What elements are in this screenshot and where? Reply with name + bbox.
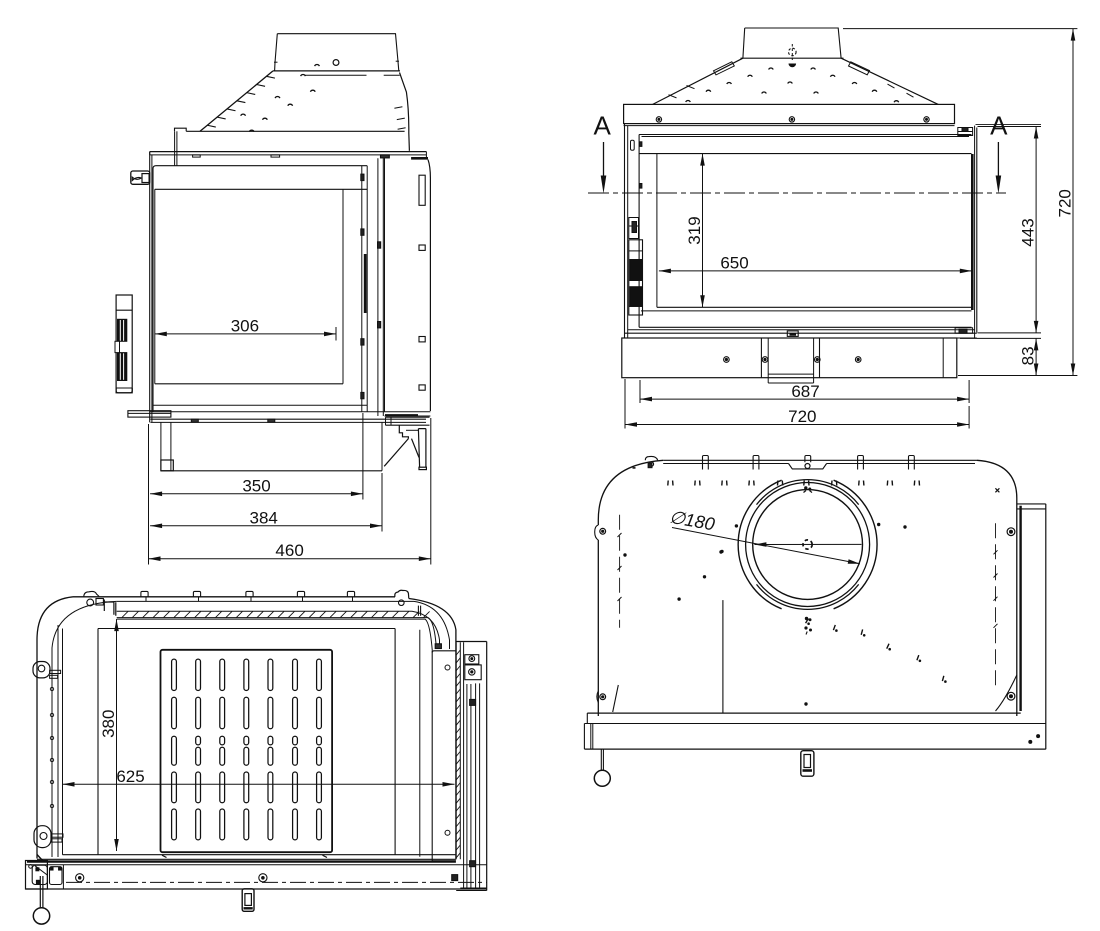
svg-text:687: 687	[791, 382, 819, 401]
svg-text:319: 319	[685, 216, 704, 244]
svg-text:460: 460	[275, 541, 303, 560]
svg-text:350: 350	[242, 476, 270, 495]
svg-text:650: 650	[720, 253, 748, 272]
svg-text:306: 306	[231, 316, 259, 335]
svg-text:384: 384	[250, 508, 278, 527]
svg-text:720: 720	[788, 407, 816, 426]
svg-text:83: 83	[1019, 346, 1038, 365]
svg-text:443: 443	[1019, 218, 1038, 246]
svg-text:A: A	[990, 111, 1008, 141]
svg-text:625: 625	[116, 767, 144, 786]
svg-text:720: 720	[1056, 189, 1075, 217]
svg-text:A: A	[594, 111, 612, 141]
svg-text:380: 380	[99, 710, 118, 738]
